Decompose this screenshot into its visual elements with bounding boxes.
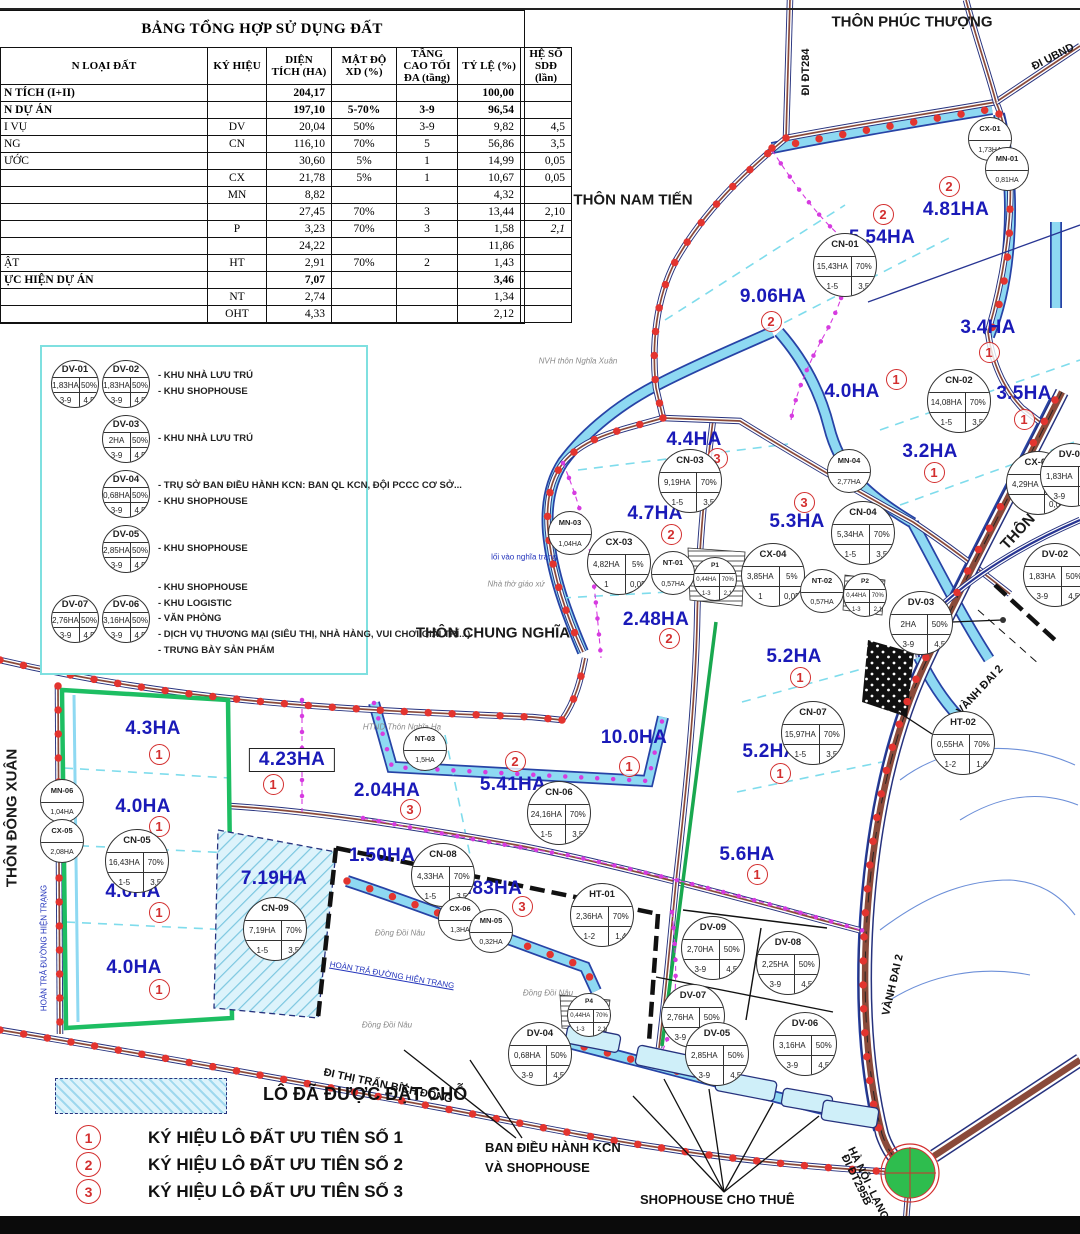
table-cell-9-tyle: 11,86 [458,238,521,255]
legend-item-text-1: - KHU NHÀ LƯU TRÚ [158,431,362,447]
table-cell-5-tyle: 10,67 [458,170,521,187]
table-cell-2-hs: 4,5 [521,119,572,136]
table-col-5: TỶ LỆ (%) [458,48,521,85]
lot-circle-NT-02: NT-020,57HA [800,569,844,613]
priority-badge-1-13: 1 [619,756,640,777]
small-label-2: Nhà thờ giáo xứ [487,580,544,589]
priority-badge-2-10: 2 [659,628,680,649]
legend-item-circles-3: DV-052,85HA50%3-94,5 [46,525,150,573]
table-cell-2-name: I VỤ [1,119,208,136]
table-cell-8-tang: 3 [397,221,458,238]
table-cell-8-name [1,221,208,238]
lot-circle-MN-06: MN-061,04HA [40,779,84,823]
table-cell-8-hs: 2,1 [521,221,572,238]
table-cell-5-dt: 21,78 [267,170,332,187]
area-label-5-3ha-9: 5.3HA [769,511,824,533]
table-cell-12-tyle: 1,34 [458,289,521,306]
priority-badge-3-24: 3 [512,896,533,917]
legend-item-circles-0: DV-011,83HA50%3-94,5DV-021,83HA50%3-94,5 [46,360,150,408]
table-col-0: N LOẠI ĐẤT [1,48,208,85]
table-cell-13-dt: 4,33 [267,306,332,323]
table-cell-13-name [1,306,208,323]
area-label-5-2ha-11: 5.2HA [766,646,821,668]
table-cell-11-tyle: 3,46 [458,272,521,289]
lot-circle-CN-06: CN-0624,16HA70%1-53,5 [527,781,591,845]
legend-bullet-4-1: - KHU LOGISTIC [158,596,470,612]
legend-item-2: DV-040,68HA50%3-94,5- TRỤ SỞ BAN ĐIỀU HÀ… [46,470,362,518]
lot-circle-P4: P40,44HA70%1-32,1 [567,993,611,1037]
priority-legend-badge-1: 1 [76,1125,101,1150]
legend-bullet-0-0: - KHU NHÀ LƯU TRÚ [158,368,362,384]
area-label-3-2ha-6: 3.2HA [902,441,957,463]
table-cell-4-kh [208,153,267,170]
table-cell-1-tyle: 96,54 [458,102,521,119]
priority-badge-2-15: 2 [505,751,526,772]
legend-circle-DV-04: DV-040,68HA50%3-94,5 [102,470,150,518]
legend-bullet-0-1: - KHU SHOPHOUSE [158,384,362,400]
table-cell-11-mat [332,272,397,289]
legend-circle-DV-07: DV-072,76HA50%3-94,5 [51,595,99,643]
priority-badge-1-3: 1 [979,342,1000,363]
table-cell-1-dt: 197,10 [267,102,332,119]
area-label-4-0ha-19: 4.0HA [115,796,170,818]
table-cell-12-hs [521,289,572,306]
table-cell-10-mat: 70% [332,255,397,272]
bottom-bar [0,1216,1080,1234]
legend-bullet-1-0: - KHU NHÀ LƯU TRÚ [158,431,362,447]
reserved-lot-swatch [55,1078,227,1114]
table-cell-9-hs [521,238,572,255]
lot-circle-DV-05: DV-052,85HA50%3-94,5 [685,1022,749,1086]
legend-bullet-2-1: - KHU SHOPHOUSE [158,494,462,510]
small-label-4: Đồng Đồi Nâu [375,929,425,938]
area-label-3-4ha-3: 3.4HA [960,317,1015,339]
area-label-5-6ha-14: 5.6HA [719,844,774,866]
table-cell-5-name [1,170,208,187]
lot-circle-NT-01: NT-010,57HA [651,551,695,595]
table-cell-3-tyle: 56,86 [458,136,521,153]
table-cell-13-hs [521,306,572,323]
priority-legend-label-3: KÝ HIỆU LÔ ĐẤT ƯU TIÊN SỐ 3 [148,1182,403,1202]
legend-item-circles-2: DV-040,68HA50%3-94,5 [46,470,150,518]
area-label-1-50ha-23: 1.50HA [349,845,415,867]
area-label-3-5ha-5: 3.5HA [996,383,1051,405]
priority-badge-1-5: 1 [1014,409,1035,430]
legend-bullet-4-3: - DỊCH VỤ THƯƠNG MẠI (SIÊU THỊ, NHÀ HÀNG… [158,627,470,643]
legend-item-1: DV-032HA50%3-94,5- KHU NHÀ LƯU TRÚ [46,415,362,463]
table-cell-6-dt: 8,82 [267,187,332,204]
master-plan-map: BẢNG TỔNG HỢP SỬ DỤNG ĐẤT N LOẠI ĐẤTKÝ H… [0,0,1080,1234]
table-cell-8-tyle: 1,58 [458,221,521,238]
legend-item-4: DV-072,76HA50%3-94,5DV-063,16HA50%3-94,5… [46,580,362,658]
table-cell-7-kh [208,204,267,221]
table-cell-1-kh [208,102,267,119]
table-cell-5-tang: 1 [397,170,458,187]
table-cell-12-kh: NT [208,289,267,306]
table-cell-11-tang [397,272,458,289]
table-cell-0-tyle: 100,00 [458,85,521,102]
area-label-7-19ha-22: 7.19HA [241,868,307,890]
priority-badge-1-6: 1 [924,462,945,483]
legend-circle-DV-06: DV-063,16HA50%3-94,5 [102,595,150,643]
small-label-6: Đồng Đồi Nâu [362,1021,412,1030]
table-cell-6-mat [332,187,397,204]
area-label-4-0ha-21: 4.0HA [106,957,161,979]
table-cell-10-tang: 2 [397,255,458,272]
table-cell-4-tyle: 14,99 [458,153,521,170]
table-cell-13-mat [332,306,397,323]
legend-item-text-2: - TRỤ SỞ BAN ĐIỀU HÀNH KCN: BAN QL KCN, … [158,478,462,509]
area-label-4-0ha-4: 4.0HA [824,381,879,403]
lot-circle-DV-06: DV-063,16HA50%3-94,5 [773,1012,837,1076]
priority-legend-label-1: KÝ HIỆU LÔ ĐẤT ƯU TIÊN SỐ 1 [148,1128,403,1148]
priority-badge-2-0: 2 [761,311,782,332]
legend-item-circles-4: DV-072,76HA50%3-94,5DV-063,16HA50%3-94,5 [46,595,150,643]
table-cell-3-name: NG [1,136,208,153]
table-cell-4-dt: 30,60 [267,153,332,170]
table-cell-3-mat: 70% [332,136,397,153]
lot-circle-CN-05: CN-0516,43HA70%1-53,5 [105,829,169,893]
table-cell-8-kh: P [208,221,267,238]
priority-legend-label-2: KÝ HIỆU LÔ ĐẤT ƯU TIÊN SỐ 2 [148,1155,403,1175]
priority-legend-badge-3: 3 [76,1179,101,1204]
legend-bullet-4-0: - KHU SHOPHOUSE [158,580,470,596]
table-cell-13-tang [397,306,458,323]
legend-bullet-4-4: - TRƯNG BÀY SẢN PHẨM [158,643,470,659]
legend-circle-DV-01: DV-011,83HA50%3-94,5 [51,360,99,408]
table-col-2: DIỆN TÍCH (HA) [267,48,332,85]
lot-circle-CN-07: CN-0715,97HA70%1-53,5 [781,701,845,765]
table-cell-5-mat: 5% [332,170,397,187]
table-cell-1-hs [521,102,572,119]
table-cell-8-dt: 3,23 [267,221,332,238]
table-cell-2-tyle: 9,82 [458,119,521,136]
table-cell-4-mat: 5% [332,153,397,170]
table-cell-4-tang: 1 [397,153,458,170]
table-cell-10-dt: 2,91 [267,255,332,272]
table-cell-7-hs: 2,10 [521,204,572,221]
table-cell-8-mat: 70% [332,221,397,238]
legend-circle-DV-05: DV-052,85HA50%3-94,5 [102,525,150,573]
small-label-0: NVH thôn Nghĩa Xuân [539,357,618,366]
area-label-4-3ha-18: 4.3HA [125,718,180,740]
table-cell-11-name: ỰC HIỆN DỰ ÁN [1,272,208,289]
table-cell-3-kh: CN [208,136,267,153]
village-label-0: THÔN PHÚC THƯỢNG [831,14,992,31]
legend-item-0: DV-011,83HA50%3-94,5DV-021,83HA50%3-94,5… [46,360,362,408]
table-cell-6-kh: MN [208,187,267,204]
area-label-2-48ha-10: 2.48HA [623,609,689,631]
lot-circle-CX-05: CX-052,08HA [40,819,84,863]
table-cell-7-tyle: 13,44 [458,204,521,221]
lot-circle-HT-01: HT-012,36HA70%1-21,4 [570,883,634,947]
priority-badge-1-14: 1 [747,864,768,885]
lot-circle-P1: P10,44HA70%1-32,1 [693,557,737,601]
lot-circle-DV-09: DV-092,70HA50%3-94,5 [681,916,745,980]
small-label-1: lối vào nghĩa trang [491,553,557,562]
table-cell-13-kh: OHT [208,306,267,323]
table-cell-6-name [1,187,208,204]
lot-circle-CN-02: CN-0214,08HA70%1-53,5 [927,369,991,433]
table-cell-11-hs [521,272,572,289]
table-cell-10-hs [521,255,572,272]
roundabout [881,1144,939,1202]
legend-bullet-3-0: - KHU SHOPHOUSE [158,541,362,557]
area-label-4-23ha-17: 4.23HA [249,748,335,772]
table-cell-0-dt: 204,17 [267,85,332,102]
annotation-shophouse-cho-thue: SHOPHOUSE CHO THUÊ [640,1192,795,1207]
priority-legend-row-2: 2KÝ HIỆU LÔ ĐẤT ƯU TIÊN SỐ 2 [76,1152,403,1177]
priority-legend-row-3: 3KÝ HIỆU LÔ ĐẤT ƯU TIÊN SỐ 3 [76,1179,403,1204]
priority-badge-1-17: 1 [263,774,284,795]
dv-legend-box: DV-011,83HA50%3-94,5DV-021,83HA50%3-94,5… [40,345,368,675]
legend-item-text-3: - KHU SHOPHOUSE [158,541,362,557]
table-col-1: KÝ HIỆU [208,48,267,85]
table-cell-0-tang [397,85,458,102]
lot-circle-CX-04: CX-043,85HA5%10,05 [741,543,805,607]
table-cell-12-tang [397,289,458,306]
table-cell-5-hs: 0,05 [521,170,572,187]
table-cell-3-hs: 3,5 [521,136,572,153]
table-cell-9-dt: 24,22 [267,238,332,255]
lot-circle-DV-03: DV-032HA50%3-94,5 [889,591,953,655]
table-cell-6-tyle: 4,32 [458,187,521,204]
lot-circle-MN-03: MN-031,04HA [548,511,592,555]
table-cell-7-name [1,204,208,221]
table-cell-0-name: N TÍCH (I+II) [1,85,208,102]
table-cell-12-dt: 2,74 [267,289,332,306]
table-cell-2-tang: 3-9 [397,119,458,136]
table-cell-0-mat [332,85,397,102]
lot-circle-HT-02: HT-020,55HA70%1-21,4 [931,711,995,775]
table-cell-3-tang: 5 [397,136,458,153]
lot-circle-CX-03: CX-034,82HA5%10,05 [587,531,651,595]
table-col-3: MẬT ĐỘ XD (%) [332,48,397,85]
table-cell-1-name: N DỰ ÁN [1,102,208,119]
legend-item-text-4: - KHU SHOPHOUSE- KHU LOGISTIC- VĂN PHÒNG… [158,580,470,658]
legend-bullet-2-0: - TRỤ SỞ BAN ĐIỀU HÀNH KCN: BAN QL KCN, … [158,478,462,494]
priority-badge-2-1: 2 [873,204,894,225]
priority-badge-1-21: 1 [149,979,170,1000]
lot-circle-CN-03: CN-039,19HA70%1-53,5 [658,449,722,513]
table-col-6: HỆ SỐ SDĐ (lần) [521,48,572,85]
table-cell-11-kh [208,272,267,289]
legend-item-circles-1: DV-032HA50%3-94,5 [46,415,150,463]
lot-circle-CN-04: CN-045,34HA70%1-53,5 [831,501,895,565]
area-label-9-06ha-0: 9.06HA [740,286,806,308]
table-cell-12-name [1,289,208,306]
table-cell-6-hs [521,187,572,204]
table-cell-11-dt: 7,07 [267,272,332,289]
annotation-ban-dieu-hanh-line2: VÀ SHOPHOUSE [485,1160,590,1175]
table-cell-4-name: ƯỚC [1,153,208,170]
table-cell-10-name: ẬT [1,255,208,272]
annotation-ban-dieu-hanh-line1: BAN ĐIỀU HÀNH KCN [485,1140,621,1155]
table-cell-9-name [1,238,208,255]
table-cell-4-hs: 0,05 [521,153,572,170]
table-col-4: TẦNG CAO TỐI ĐA (tầng) [397,48,458,85]
table-cell-7-tang: 3 [397,204,458,221]
reserved-lot-label: LÔ ĐÃ ĐƯỢC ĐẶT CHỖ [263,1084,467,1105]
small-label-8: HOÀN TRẢ ĐƯỜNG HIỆN TRẠNG [40,885,49,1011]
table-cell-2-dt: 20,04 [267,119,332,136]
priority-badge-2-2: 2 [939,176,960,197]
table-cell-1-tang: 3-9 [397,102,458,119]
table-cell-12-mat [332,289,397,306]
legend-item-text-0: - KHU NHÀ LƯU TRÚ- KHU SHOPHOUSE [158,368,362,399]
lot-circle-CN-01: CN-0115,43HA70%1-53,5 [813,233,877,297]
small-label-5: Đồng Đồi Nâu [523,989,573,998]
priority-badge-1-4: 1 [886,369,907,390]
priority-badge-1-11: 1 [790,667,811,688]
table-cell-0-hs [521,85,572,102]
village-label-3: THÔN ĐÔNG XUÂN [4,749,21,887]
priority-badge-1-20: 1 [149,902,170,923]
priority-badge-2-8: 2 [661,524,682,545]
table-cell-6-tang [397,187,458,204]
lot-circle-DV-08: DV-082,25HA50%3-94,5 [756,931,820,995]
lot-circle-CN-09: CN-097,19HA70%1-53,5 [243,897,307,961]
table-cell-3-dt: 116,10 [267,136,332,153]
table-cell-5-kh: CX [208,170,267,187]
lot-circle-DV-02: DV-021,83HA50%3-94,5 [1023,543,1080,607]
village-label-1: THÔN NAM TIẾN [573,192,692,209]
lot-circle-MN-01: MN-010,81HA [985,147,1029,191]
table-cell-10-tyle: 1,43 [458,255,521,272]
lot-circle-NT-03: NT-031,5HA [403,727,447,771]
table-cell-13-tyle: 2,12 [458,306,521,323]
table-cell-9-kh [208,238,267,255]
table-cell-9-tang [397,238,458,255]
priority-badge-1-12: 1 [770,763,791,784]
legend-circle-DV-02: DV-021,83HA50%3-94,5 [102,360,150,408]
table-cell-9-mat [332,238,397,255]
lot-circle-MN-05: MN-050,32HA [469,909,513,953]
lot-circle-DV-04: DV-040,68HA50%3-94,5 [508,1022,572,1086]
table-cell-0-kh [208,85,267,102]
priority-badge-1-18: 1 [149,744,170,765]
table-cell-7-mat: 70% [332,204,397,221]
priority-badge-3-9: 3 [794,492,815,513]
road-label-0: ĐI ĐT284 [800,48,812,95]
table-cell-1-mat: 5-70% [332,102,397,119]
table-cell-2-kh: DV [208,119,267,136]
priority-legend-row-1: 1KÝ HIỆU LÔ ĐẤT ƯU TIÊN SỐ 1 [76,1125,403,1150]
lot-circle-MN-04: MN-042,77HA [827,449,871,493]
table-title: BẢNG TỔNG HỢP SỬ DỤNG ĐẤT [0,11,524,47]
legend-bullet-4-2: - VĂN PHÒNG [158,611,470,627]
table-cell-7-dt: 27,45 [267,204,332,221]
priority-legend-badge-2: 2 [76,1152,101,1177]
lot-circle-P2: P20,44HA70%1-32,1 [843,573,887,617]
priority-badge-3-16: 3 [400,799,421,820]
land-use-table: BẢNG TỔNG HỢP SỬ DỤNG ĐẤT N LOẠI ĐẤTKÝ H… [0,10,525,324]
table-cell-2-mat: 50% [332,119,397,136]
area-label-4-81ha-2: 4.81HA [923,199,989,221]
table-cell-10-kh: HT [208,255,267,272]
legend-circle-DV-03: DV-032HA50%3-94,5 [102,415,150,463]
area-label-10-0ha-13: 10.0HA [601,727,667,749]
legend-item-3: DV-052,85HA50%3-94,5- KHU SHOPHOUSE [46,525,362,573]
